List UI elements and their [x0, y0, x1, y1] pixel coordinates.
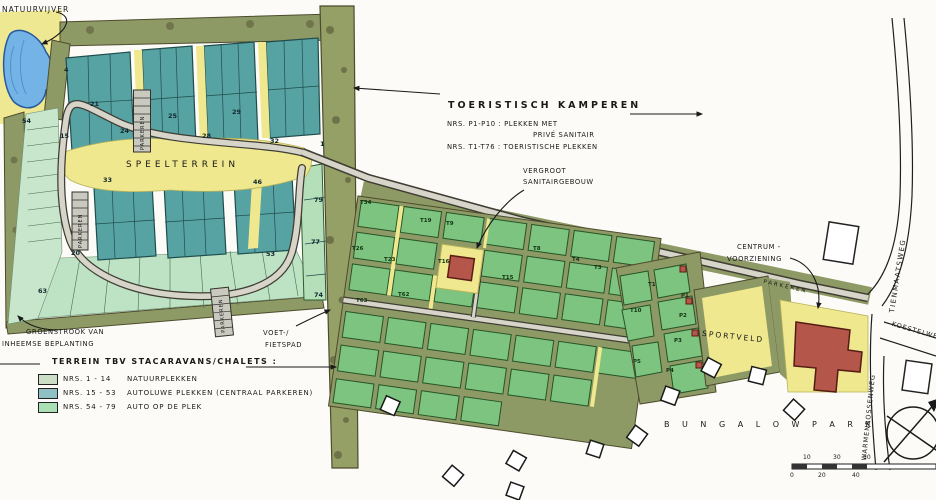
plot-number: 21: [90, 100, 99, 108]
plot-number: 54: [22, 117, 31, 125]
centrum-label-line2: VOORZIENING: [727, 255, 782, 263]
plot-number: 77: [311, 238, 320, 246]
legend-range-3: NRS. 54 - 79: [63, 403, 127, 411]
scale-number: 20: [818, 472, 826, 479]
legend-item-natuurplekken: NRS. 1 - 14 NATUURPLEKKEN: [38, 374, 198, 384]
scale-number: 50: [863, 454, 871, 461]
parkeren-label-1: PARKEREN: [140, 116, 146, 150]
legend-label-2: AUTOLUWE PLEKKEN (CENTRAAL PARKEREN): [127, 389, 313, 397]
private-plot-number: P4: [666, 368, 674, 374]
scale-bar: [792, 464, 936, 469]
toeristisch-kamperen-title: TOERISTISCH KAMPEREN: [448, 100, 641, 111]
tourist-plot-number: T26: [352, 246, 363, 252]
plot-number: 1: [320, 140, 325, 148]
vergroot-label-line2: SANITAIRGEBOUW: [523, 178, 594, 186]
toeristisch-note-3: NRS. T1-T76 : TOERISTISCHE PLEKKEN: [447, 143, 598, 151]
plot-number: 79: [314, 196, 323, 204]
plot-number: 29: [232, 108, 241, 116]
site-plan: NATUURVIJVER TOERISTISCH KAMPEREN NRS. P…: [0, 0, 936, 500]
toeristisch-note-2: PRIVÉ SANITAIR: [533, 131, 595, 139]
plot-number: 53: [266, 250, 275, 258]
tourist-plot-number: T3: [594, 265, 602, 271]
speelterrein-label: SPEELTERREIN: [126, 160, 239, 170]
plot-number: 20: [71, 249, 80, 257]
plot-number: 32: [270, 137, 279, 145]
vergroot-label-line1: VERGROOT: [523, 167, 566, 175]
legend-range-1: NRS. 1 - 14: [63, 375, 127, 383]
plot-number: 4: [64, 66, 69, 74]
tourist-plot-number: T15: [502, 275, 513, 281]
tourist-plot-number: T19: [420, 218, 431, 224]
voetpad-label-line2: FIETSPAD: [265, 341, 302, 349]
tourist-plot-number: T23: [384, 257, 395, 263]
tourist-plot-number: T34: [360, 200, 371, 206]
plot-number: 33: [103, 176, 112, 184]
plot-number: 46: [253, 178, 262, 186]
tourist-plot-number: T63: [356, 298, 367, 304]
plot-number: 63: [38, 287, 47, 295]
tourist-plot-number: T9: [446, 221, 454, 227]
natuurvijver-label: NATUURVIJVER: [2, 5, 69, 14]
scale-number: 30: [833, 454, 841, 461]
tourist-plot-number: T4: [572, 257, 580, 263]
toeristisch-note-1: NRS. P1-P10 : PLEKKEN MET: [447, 120, 558, 128]
legend-label-3: AUTO OP DE PLEK: [127, 403, 202, 411]
plot-number: 25: [168, 112, 177, 120]
scale-number: 40: [852, 472, 860, 479]
legend-item-autoluwe: NRS. 15 - 53 AUTOLUWE PLEKKEN (CENTRAAL …: [38, 388, 313, 398]
scale-number: 0: [790, 472, 794, 479]
legend-swatch-3: [38, 402, 58, 413]
tourist-plot-number: T16: [438, 259, 449, 265]
bungalowpark-label: B U N G A L O W P A R K: [664, 420, 876, 429]
private-plot-number: P5: [633, 359, 641, 365]
parkeren-label-2: PARKEREN: [78, 214, 84, 248]
tourist-plot-number: T1: [648, 282, 656, 288]
sanitair-building: [448, 255, 475, 280]
plot-number: 15: [60, 132, 69, 140]
groenstrook-label-line1: GROENSTROOK VAN: [26, 328, 104, 336]
scale-number: 10: [803, 454, 811, 461]
plot-number: 28: [202, 132, 211, 140]
plot-number: 24: [120, 127, 129, 135]
voetpad-label-line1: VOET-/: [263, 329, 289, 337]
tourist-plot-number: T62: [398, 292, 409, 298]
private-plot-number: P3: [674, 338, 682, 344]
legend-label-1: NATUURPLEKKEN: [127, 375, 198, 383]
private-plot-number: P1: [681, 293, 689, 299]
groenstrook-label-line2: INHEEMSE BEPLANTING: [2, 340, 94, 348]
legend-range-2: NRS. 15 - 53: [63, 389, 127, 397]
tourist-plot-number: T8: [533, 246, 541, 252]
legend-swatch-2: [38, 388, 58, 399]
tourist-plot-number: T10: [630, 308, 641, 314]
left-area: [0, 10, 332, 337]
legend-title: TERREIN TBV STACARAVANS/CHALETS :: [52, 357, 277, 366]
plot-number: 74: [314, 291, 323, 299]
centrum-label-line1: CENTRUM -: [737, 243, 781, 251]
compass-rose: [884, 398, 936, 462]
legend-swatch-1: [38, 374, 58, 385]
legend-item-auto-op-plek: NRS. 54 - 79 AUTO OP DE PLEK: [38, 402, 202, 412]
private-plot-number: P2: [679, 313, 687, 319]
